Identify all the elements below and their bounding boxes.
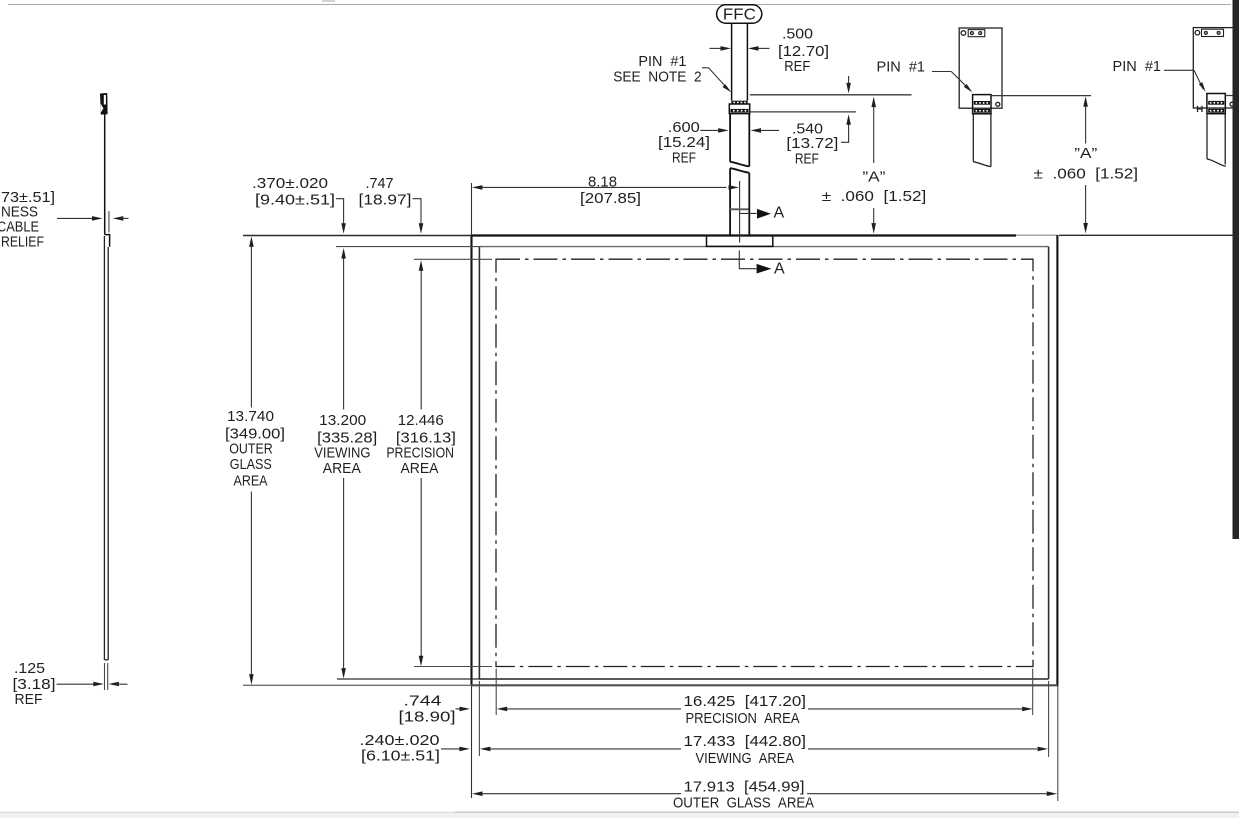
svg-text:REF: REF bbox=[795, 151, 819, 168]
svg-text:17.913 [454.99]: 17.913 [454.99] bbox=[684, 779, 805, 796]
svg-text:”A”: ”A” bbox=[862, 169, 885, 186]
svg-text:SEE NOTE 2: SEE NOTE 2 bbox=[613, 69, 702, 86]
svg-text:OUTER: OUTER bbox=[229, 441, 273, 458]
svg-text:FFC: FFC bbox=[723, 7, 756, 24]
svg-text:RELIEF: RELIEF bbox=[1, 234, 44, 251]
svg-text:VIEWING AREA: VIEWING AREA bbox=[696, 750, 795, 767]
svg-text:16.425 [417.20]: 16.425 [417.20] bbox=[684, 693, 807, 710]
svg-text:[15.24]: [15.24] bbox=[658, 134, 710, 151]
svg-text:8.18: 8.18 bbox=[588, 174, 617, 191]
svg-text:REF: REF bbox=[672, 150, 696, 167]
svg-text:13.200: 13.200 bbox=[319, 412, 366, 429]
svg-text:[18.97]: [18.97] bbox=[359, 192, 412, 209]
svg-text:[13.72]: [13.72] bbox=[786, 135, 838, 152]
svg-text:OUTER GLASS AREA: OUTER GLASS AREA bbox=[673, 795, 814, 812]
svg-text:”A”: ”A” bbox=[1074, 145, 1097, 162]
svg-text:.500: .500 bbox=[782, 26, 813, 43]
svg-text:REF: REF bbox=[784, 58, 810, 75]
svg-text:AREA: AREA bbox=[323, 460, 361, 477]
svg-text:.370±.020: .370±.020 bbox=[252, 175, 328, 192]
svg-text:AREA: AREA bbox=[401, 460, 439, 477]
svg-text:AREA: AREA bbox=[234, 472, 268, 489]
svg-text:A: A bbox=[774, 204, 785, 221]
svg-text:.747: .747 bbox=[366, 175, 394, 192]
svg-text:.125: .125 bbox=[14, 660, 45, 677]
svg-text:PIN #1: PIN #1 bbox=[877, 59, 926, 76]
svg-text:PRECISION AREA: PRECISION AREA bbox=[686, 710, 800, 727]
svg-text:.744: .744 bbox=[404, 693, 442, 710]
svg-text:PIN #1: PIN #1 bbox=[1113, 58, 1162, 75]
svg-text:± .060 [1.52]: ± .060 [1.52] bbox=[1034, 166, 1139, 183]
svg-text:17.433 [442.80]: 17.433 [442.80] bbox=[684, 733, 807, 750]
svg-text:[6.10±.51]: [6.10±.51] bbox=[361, 748, 440, 765]
svg-text:A: A bbox=[774, 260, 785, 277]
svg-text:.240±.020: .240±.020 bbox=[360, 732, 440, 749]
svg-text:13.740: 13.740 bbox=[227, 408, 274, 425]
svg-text:[9.40±.51]: [9.40±.51] bbox=[255, 192, 335, 209]
svg-text:[207.85]: [207.85] bbox=[580, 190, 641, 207]
svg-text:12.446: 12.446 bbox=[398, 412, 444, 429]
svg-text:PIN #1: PIN #1 bbox=[638, 53, 686, 70]
svg-text:± .060 [1.52]: ± .060 [1.52] bbox=[822, 188, 927, 205]
svg-text:[18.90]: [18.90] bbox=[399, 709, 456, 726]
svg-text:REF: REF bbox=[15, 691, 43, 708]
svg-text:GLASS: GLASS bbox=[230, 456, 272, 473]
